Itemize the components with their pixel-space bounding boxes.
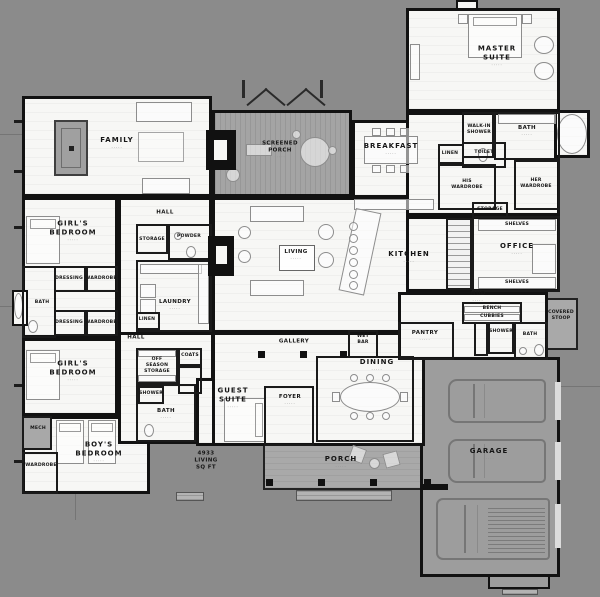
pool-table xyxy=(54,120,88,176)
label-master-bath-dims: ····· xyxy=(518,133,536,139)
label-porch-text: PORCH xyxy=(325,455,357,463)
garage-door-opening xyxy=(555,382,561,420)
label-boys-bedroom-text: BOY'S BEDROOM xyxy=(75,440,122,457)
label-office-text: OFFICE xyxy=(500,242,534,250)
pickup-truck xyxy=(436,498,550,560)
label-pantry: PANTRY ····· xyxy=(412,330,438,344)
living-chair xyxy=(318,252,334,268)
label-his-wardrobe: HIS WARDROBE xyxy=(448,179,486,191)
label-linen-laundry: LINEN xyxy=(139,317,155,323)
label-porch-dims: ····· xyxy=(325,465,357,471)
label-kitchen-dims: ····· xyxy=(388,260,429,266)
label-hall-storage: STORAGE xyxy=(139,237,165,243)
area-note-line3: SQ FT xyxy=(194,465,217,472)
bar-stool xyxy=(349,258,358,267)
label-garage-dims: ····· xyxy=(470,457,509,463)
label-gallery: GALLERY xyxy=(279,338,309,345)
roof-post xyxy=(320,80,323,98)
mech-room xyxy=(22,416,52,450)
area-note-line2: LIVING xyxy=(194,457,217,464)
bar-stool xyxy=(349,222,358,231)
roof-post xyxy=(242,80,245,98)
boys-wardrobe-room xyxy=(22,452,58,494)
covered-stoop-area xyxy=(544,298,578,350)
label-office: OFFICE ····· xyxy=(500,242,534,258)
label-shelves-bottom: SHELVES xyxy=(505,280,529,286)
label-master-bath: BATH ····· xyxy=(518,125,536,139)
label-porch: PORCH ····· xyxy=(325,455,357,471)
dimension-line xyxy=(75,494,76,520)
label-wardrobe-1: WARDROBE xyxy=(85,276,116,282)
porch-column xyxy=(370,479,377,486)
label-living: LIVING ····· xyxy=(284,249,307,263)
label-area-note: 4933 LIVING SQ FT xyxy=(194,450,217,471)
gallery-column xyxy=(340,351,347,358)
porch-round-table xyxy=(300,137,330,167)
label-breakfast: BREAKFAST ····· xyxy=(356,142,426,158)
label-girls-bedroom-2: GIRL'S BEDROOM ····· xyxy=(44,359,102,384)
breakfast-chair xyxy=(400,165,409,173)
label-garage: GARAGE ····· xyxy=(470,447,509,463)
breakfast-chair xyxy=(372,165,381,173)
porch-column xyxy=(318,479,325,486)
label-laundry-text: LAUNDRY xyxy=(159,299,191,305)
label-family: FAMILY ····· xyxy=(87,136,147,152)
living-chair xyxy=(238,226,251,239)
living-sofa xyxy=(250,206,304,222)
roof-gable-line xyxy=(246,88,267,106)
label-girls-bedroom-2-dims: ····· xyxy=(44,379,102,385)
family-sofa xyxy=(136,102,192,122)
label-hall-lower: HALL xyxy=(127,334,144,341)
label-kitchen: KITCHEN ····· xyxy=(388,250,429,266)
roof-gable-line xyxy=(264,88,285,106)
label-mud-shower: SHOWER xyxy=(489,329,513,335)
label-mud-text: MUD xyxy=(470,291,486,297)
label-guest-suite-text: GUEST SUITE xyxy=(217,386,248,403)
label-dining-text: DINING xyxy=(360,358,394,366)
label-living-dims: ····· xyxy=(284,257,307,263)
label-screened-porch-text: SCREENED PORCH xyxy=(262,140,298,153)
label-foyer-text: FOYER xyxy=(279,394,301,400)
garage-door-opening xyxy=(555,442,561,480)
garage-rear-entry xyxy=(488,575,550,589)
label-coats: COATS xyxy=(181,353,199,359)
label-master-bath-text: BATH xyxy=(518,125,536,131)
side-steps xyxy=(176,492,204,501)
label-powder: POWDER xyxy=(177,234,201,240)
label-pantry-text: PANTRY xyxy=(412,330,438,336)
living-firebox xyxy=(216,246,227,264)
label-dining-dims: ····· xyxy=(360,368,394,374)
label-boys-shower: SHOWER xyxy=(139,391,163,397)
label-guest-suite: GUEST SUITE ····· xyxy=(213,386,253,411)
porch-steps xyxy=(296,490,392,501)
mud-closet xyxy=(474,322,488,356)
porch-firebox xyxy=(214,140,227,160)
label-mud-bath: BATH xyxy=(523,332,537,338)
porch-chair xyxy=(292,130,301,139)
nightstand xyxy=(522,14,532,24)
label-guest-suite-dims: ····· xyxy=(213,406,253,412)
bar-stool xyxy=(349,234,358,243)
label-shelves-top: SHELVES xyxy=(505,222,529,228)
powder-room xyxy=(168,224,212,260)
bar-stool xyxy=(349,281,358,290)
label-boys-bedroom-dims: ····· xyxy=(70,460,128,466)
label-walk-in-shower: WALK-IN SHOWER xyxy=(463,124,495,136)
car-1 xyxy=(448,379,546,423)
label-wet-bar: WET BAR xyxy=(352,334,374,346)
label-covered-stoop: COVERED STOOP xyxy=(546,310,576,322)
label-screened-porch: SCREENED PORCH ····· xyxy=(258,140,302,161)
label-screened-porch-dims: ····· xyxy=(258,156,302,162)
label-dining: DINING ····· xyxy=(360,358,394,374)
bar-stool xyxy=(349,246,358,255)
label-breakfast-dims: ····· xyxy=(356,152,426,158)
living-sofa xyxy=(250,280,304,296)
label-office-dims: ····· xyxy=(500,252,534,258)
bar-stool xyxy=(349,270,358,279)
area-note-line1: 4933 xyxy=(194,450,217,457)
label-family-dims: ····· xyxy=(87,146,147,152)
label-mud: MUD ····· xyxy=(470,291,486,305)
bathtub xyxy=(557,114,587,154)
label-living-text: LIVING xyxy=(284,249,307,255)
kitchen-counter xyxy=(354,199,434,210)
label-girls-bedroom-1: GIRL'S BEDROOM ····· xyxy=(44,219,102,244)
label-girls-bedroom-1-dims: ····· xyxy=(44,239,102,245)
label-breakfast-text: BREAKFAST xyxy=(364,142,419,150)
dimension-line xyxy=(0,134,22,135)
label-storage-master: STORAGE xyxy=(477,207,503,213)
label-dressing-1: DRESSING xyxy=(55,276,83,282)
label-master-suite: MASTER SUITE ····· xyxy=(473,44,521,69)
dimension-line xyxy=(560,386,600,387)
label-her-wardrobe: HER WARDROBE xyxy=(517,178,555,190)
family-sofa2 xyxy=(142,178,190,194)
garage-door-opening xyxy=(555,504,561,548)
label-hall-upper: HALL xyxy=(156,209,173,216)
armchair xyxy=(534,36,554,54)
label-laundry-dims: ····· xyxy=(159,307,191,313)
label-girls-bedroom-2-text: GIRL'S BEDROOM xyxy=(49,359,96,376)
breakfast-chair xyxy=(386,128,395,136)
porch-side-table xyxy=(369,458,380,469)
label-toilet: TOILET xyxy=(474,150,493,156)
label-laundry: LAUNDRY ····· xyxy=(159,299,191,313)
label-foyer-dims: ····· xyxy=(279,402,301,408)
label-girls-bedroom-1-text: GIRL'S BEDROOM xyxy=(49,219,96,236)
mud-shower-room xyxy=(488,322,514,354)
porch-column xyxy=(266,479,273,486)
mud-bath-room xyxy=(514,322,548,360)
staircase xyxy=(446,218,472,290)
label-foyer: FOYER ····· xyxy=(279,394,301,408)
living-chair xyxy=(318,224,334,240)
label-master-suite-text: MASTER SUITE xyxy=(478,44,516,61)
breakfast-chair xyxy=(372,128,381,136)
nightstand xyxy=(458,14,468,24)
armchair xyxy=(534,62,554,80)
label-family-text: FAMILY xyxy=(100,136,133,144)
label-mud-dims: ····· xyxy=(470,299,486,305)
floor-plan: FAMILY ····· SCREENED PORCH ····· BREAKF… xyxy=(0,0,600,597)
label-master-suite-dims: ····· xyxy=(473,64,521,70)
label-boys-bath-dims: ····· xyxy=(157,416,175,422)
label-dressing-2: DRESSING xyxy=(55,320,83,326)
breakfast-chair xyxy=(386,165,395,173)
label-boys-bedroom: BOY'S BEDROOM ····· xyxy=(70,440,128,465)
garage-wall-stub xyxy=(420,484,448,490)
dresser xyxy=(410,44,420,80)
label-bench: BENCH xyxy=(483,306,502,312)
label-boys-bath: BATH ····· xyxy=(157,408,175,422)
label-boys-bath-text: BATH xyxy=(157,408,175,414)
porch-chair xyxy=(328,146,337,155)
roof-gable-line xyxy=(286,88,307,106)
label-wardrobe-2: WARDROBE xyxy=(85,320,116,326)
label-girls-bath: BATH xyxy=(35,300,49,306)
gallery-column xyxy=(300,351,307,358)
porch-lounge-chair xyxy=(226,168,240,182)
label-pantry-dims: ····· xyxy=(412,338,438,344)
label-garage-text: GARAGE xyxy=(470,447,509,455)
breakfast-chair xyxy=(400,128,409,136)
garage-rear-steps xyxy=(502,589,538,595)
label-mech: MECH xyxy=(30,426,46,432)
label-linen-master: LINEN xyxy=(442,151,458,157)
label-kitchen-text: KITCHEN xyxy=(388,250,429,258)
label-cubbies: CUBBIES xyxy=(480,314,504,320)
gallery-column xyxy=(258,351,265,358)
label-boys-wardrobe: WARDROBE xyxy=(25,463,56,469)
label-off-season-storage: OFF SEASON STORAGE xyxy=(141,357,173,375)
living-chair xyxy=(238,250,251,263)
